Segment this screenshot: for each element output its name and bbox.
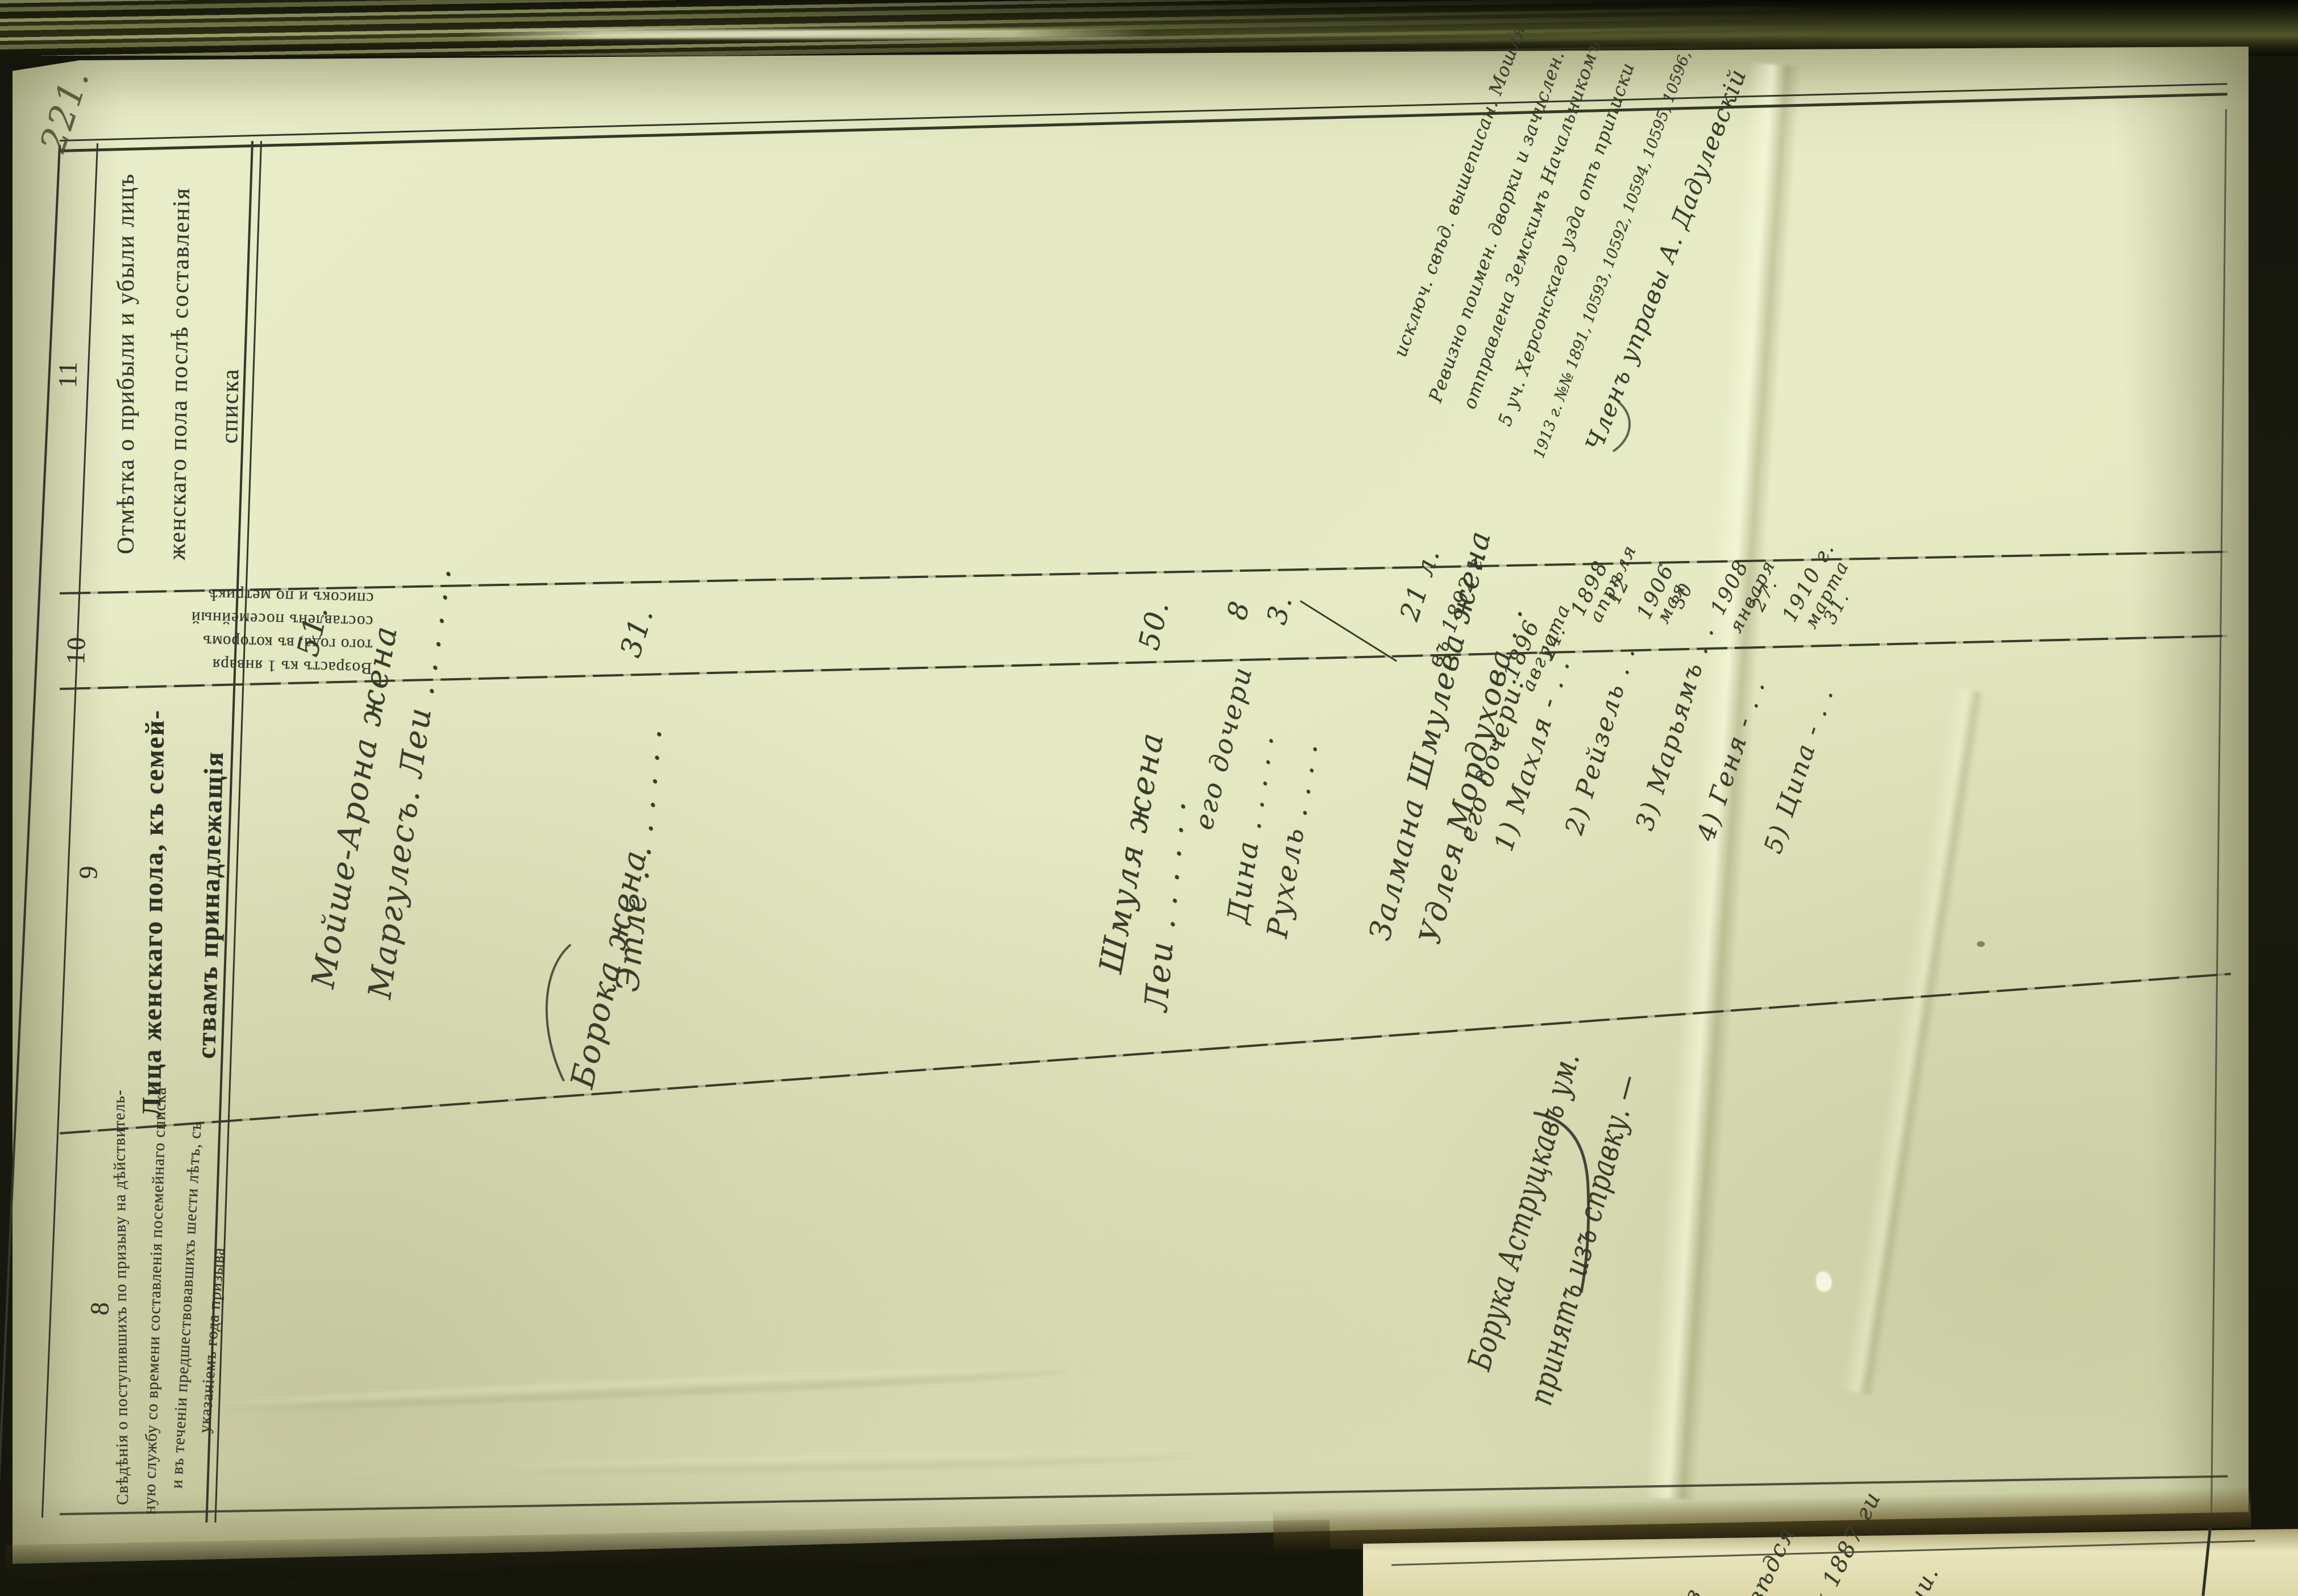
column-number-10: 10 — [60, 635, 92, 665]
book-page-stack-top — [0, 0, 2298, 56]
col9-header-line1: Лица женскаго пола, къ семей- — [136, 709, 171, 1117]
col8-header-line1: Свѣдѣнія о поступившихъ по призыву на дѣ… — [110, 1089, 132, 1505]
col11-header-line3: списка — [216, 368, 244, 443]
col11-header-line1: Отмѣтка о прибыли и убыли лицъ — [113, 173, 140, 554]
paper-chip — [1817, 1272, 1831, 1291]
col10-header-block: Возрастъ къ 1 января того года, въ котор… — [102, 573, 374, 680]
col11-header-line2: женскаго пола послѣ составленія — [164, 187, 196, 560]
page-edge-glare — [466, 30, 1148, 39]
column-number-9: 9 — [73, 864, 103, 880]
next-page-rule — [1391, 1540, 2255, 1566]
scanned-ledger-photo: 221. 11 10 9 8 Отмѣтка о прибыли и убыли… — [0, 0, 2298, 1596]
page-stack-layers — [0, 0, 2298, 56]
ink-blot — [1977, 941, 1985, 947]
column-number-11: 11 — [52, 360, 83, 388]
column-number-8: 8 — [84, 1300, 115, 1316]
